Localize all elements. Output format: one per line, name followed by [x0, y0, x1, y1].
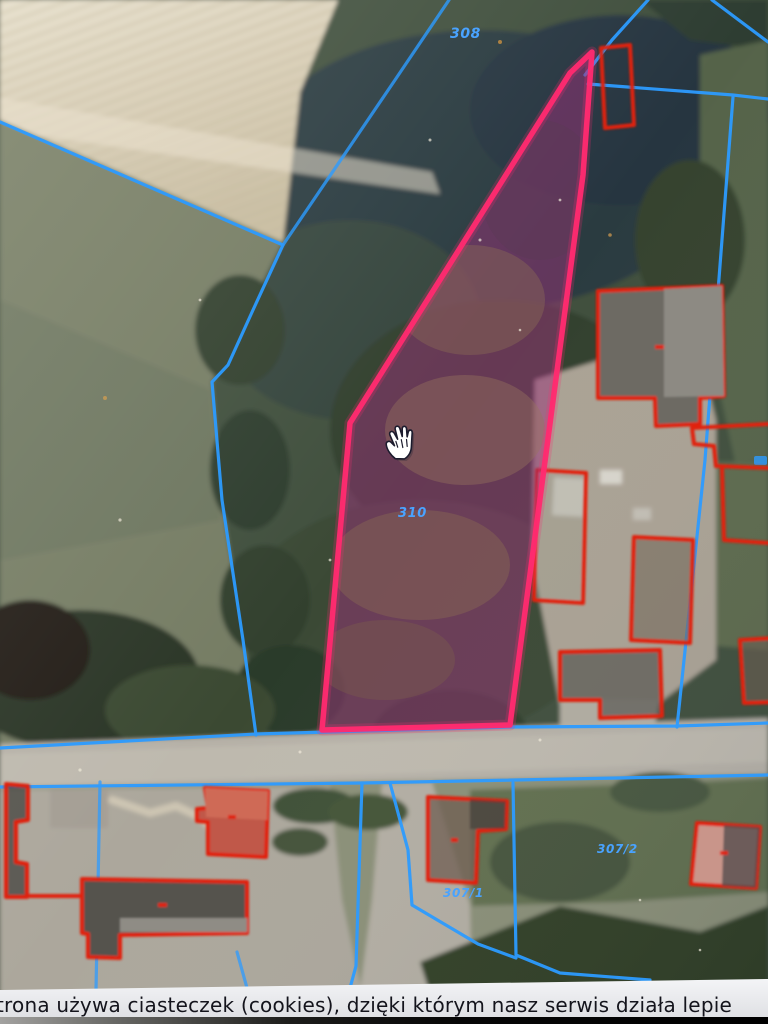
parcel-label-307-1: 307/1 — [443, 886, 484, 900]
geoportal-screen: 308 310 307/2 307/1 trona używa ciastecz… — [0, 0, 768, 1024]
building-mid2 — [631, 537, 693, 643]
address-point — [451, 838, 458, 842]
speck — [539, 739, 542, 742]
speck — [699, 949, 702, 952]
speck — [199, 299, 202, 302]
speck-orange — [498, 40, 502, 44]
building-307-2-shadow — [722, 825, 760, 888]
address-point — [158, 903, 167, 907]
address-point — [655, 345, 664, 349]
parcel-label-308: 308 — [450, 26, 481, 42]
address-point — [228, 815, 236, 819]
speck — [329, 559, 332, 562]
building-barn-eave — [120, 918, 247, 932]
parcel-scrub — [330, 510, 510, 620]
partial-label-blob — [754, 456, 767, 465]
speck — [559, 199, 562, 202]
building-307-1-shadow — [470, 799, 506, 829]
speck — [479, 239, 482, 242]
building-big-house-roof-light — [664, 286, 724, 397]
building-right-lower — [740, 638, 768, 703]
speck — [118, 518, 121, 521]
cookie-banner-text: trona używa ciasteczek (cookies), dzięki… — [0, 993, 732, 1017]
parcel-label-307-2: 307/2 — [597, 842, 638, 856]
screen-bottom-edge — [0, 1017, 768, 1024]
address-point — [720, 851, 728, 855]
speck — [639, 899, 642, 902]
parcel-label-310: 310 — [398, 506, 427, 521]
speck — [519, 329, 522, 332]
map-canvas[interactable]: 308 310 307/2 307/1 — [0, 0, 768, 1024]
speck — [78, 768, 81, 771]
speck — [299, 751, 302, 754]
building-red-roof-light — [205, 788, 268, 820]
speck-orange — [103, 396, 107, 400]
speck-orange — [608, 233, 612, 237]
speck — [429, 139, 432, 142]
